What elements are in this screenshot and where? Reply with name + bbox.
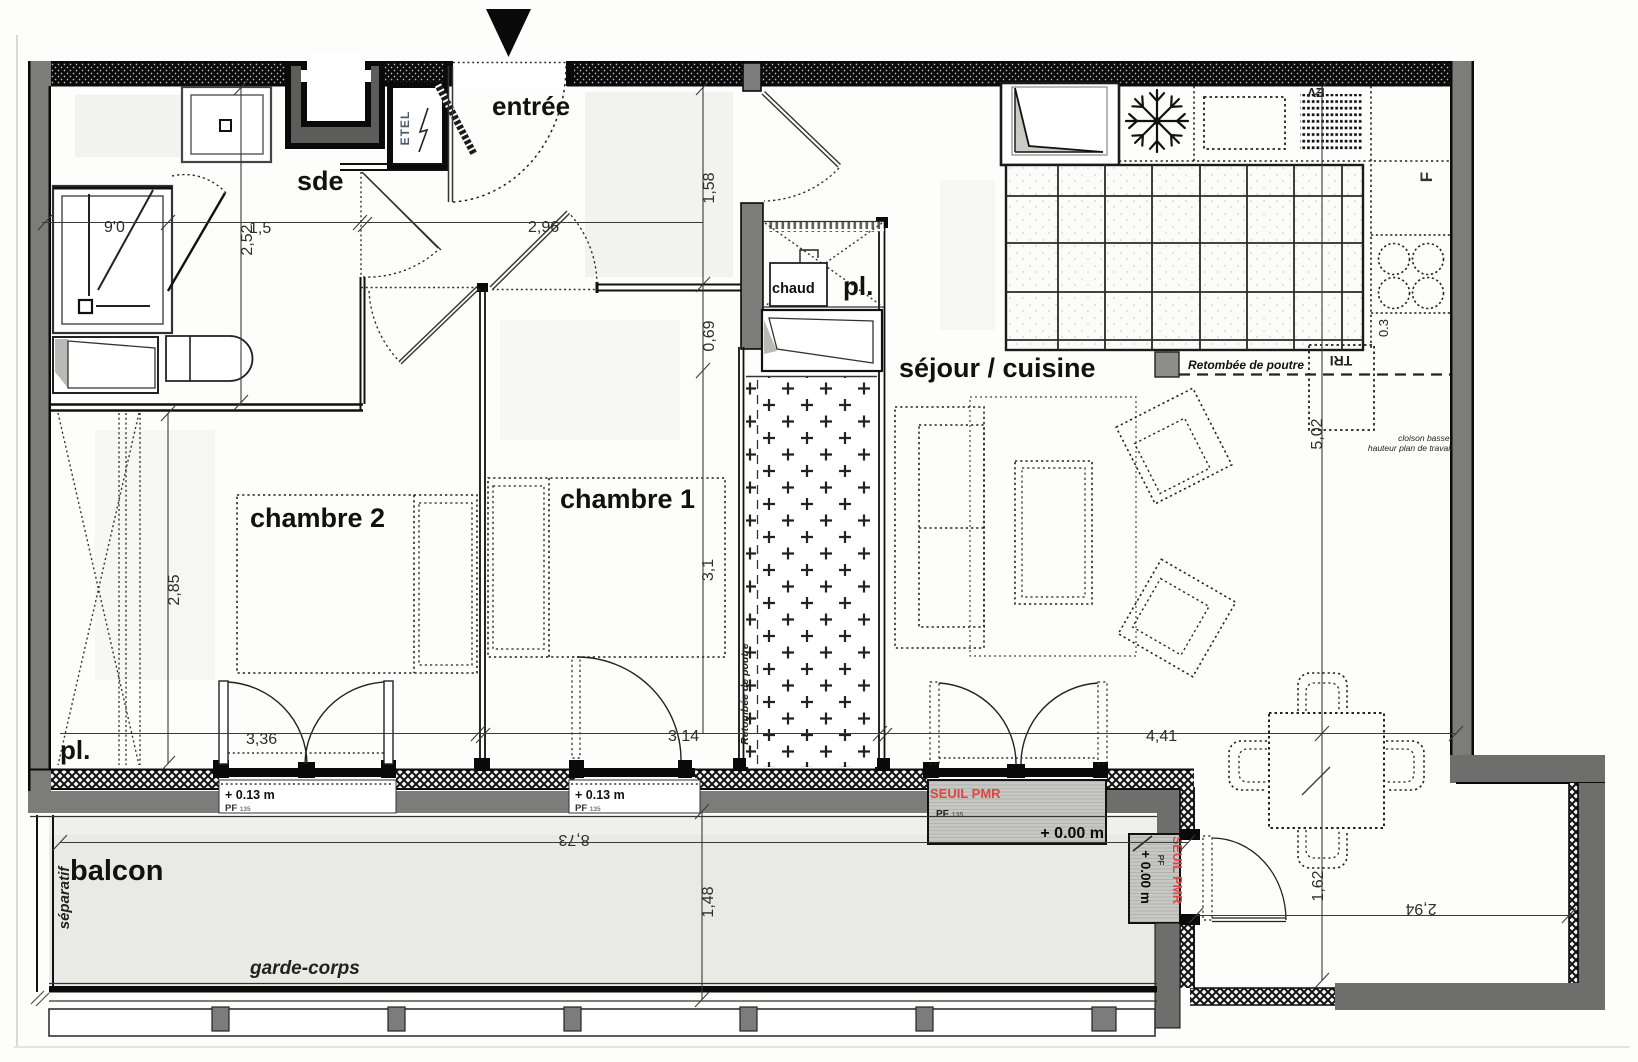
svg-text:séparatif: séparatif <box>56 865 73 930</box>
svg-text:Retombée de poutre: Retombée de poutre <box>1188 358 1304 372</box>
svg-text:SEUIL PMR: SEUIL PMR <box>1170 836 1184 904</box>
svg-text:garde-corps: garde-corps <box>249 958 360 979</box>
svg-text:+ 0.00 m: + 0.00 m <box>1138 850 1153 904</box>
svg-text:sde: sde <box>297 166 344 196</box>
svg-text:ETEL: ETEL <box>398 111 412 146</box>
svg-text:chambre 1: chambre 1 <box>560 484 695 514</box>
svg-text:balcon: balcon <box>70 855 163 887</box>
svg-text:séjour / cuisine: séjour / cuisine <box>899 353 1096 383</box>
svg-text:3,14: 3,14 <box>668 728 699 745</box>
svg-text:1,48: 1,48 <box>700 886 717 917</box>
svg-text:4,41: 4,41 <box>1146 728 1177 745</box>
svg-text:+ 0.00 m: + 0.00 m <box>1040 825 1104 842</box>
svg-text:pl.: pl. <box>843 271 873 301</box>
svg-text:1,62: 1,62 <box>1310 870 1327 901</box>
svg-text:9'0: 9'0 <box>104 219 125 236</box>
svg-text:+ 0.13 m: + 0.13 m <box>575 788 625 802</box>
svg-text:hauteur plan de travail: hauteur plan de travail <box>1368 443 1453 453</box>
svg-text:PF: PF <box>1156 855 1166 866</box>
svg-text:2,85: 2,85 <box>166 574 183 605</box>
svg-text:entrée: entrée <box>492 91 570 121</box>
svg-text:1,58: 1,58 <box>701 172 718 203</box>
svg-text:chaud: chaud <box>772 281 815 297</box>
svg-text:+ 0.13 m: + 0.13 m <box>225 788 275 802</box>
svg-text:chambre 2: chambre 2 <box>250 503 385 533</box>
svg-text:F: F <box>1417 172 1436 182</box>
svg-text:SEUIL PMR: SEUIL PMR <box>930 786 1001 801</box>
svg-text:3,36: 3,36 <box>246 731 277 748</box>
svg-text:2,94: 2,94 <box>1405 900 1436 917</box>
svg-text:Retombée de poutre: Retombée de poutre <box>739 643 751 745</box>
svg-text:TRI: TRI <box>1330 353 1353 369</box>
svg-text:0,69: 0,69 <box>701 320 718 351</box>
svg-text:cloison basse,: cloison basse, <box>1398 433 1452 443</box>
svg-text:3,1: 3,1 <box>700 559 717 581</box>
svg-text:pl.: pl. <box>60 735 90 765</box>
svg-text:5,02: 5,02 <box>1309 418 1326 449</box>
svg-text:2,96: 2,96 <box>528 219 559 236</box>
svg-text:2,52: 2,52 <box>239 224 256 255</box>
svg-text:8,73: 8,73 <box>558 831 589 848</box>
svg-text:0.3: 0.3 <box>1376 319 1391 337</box>
